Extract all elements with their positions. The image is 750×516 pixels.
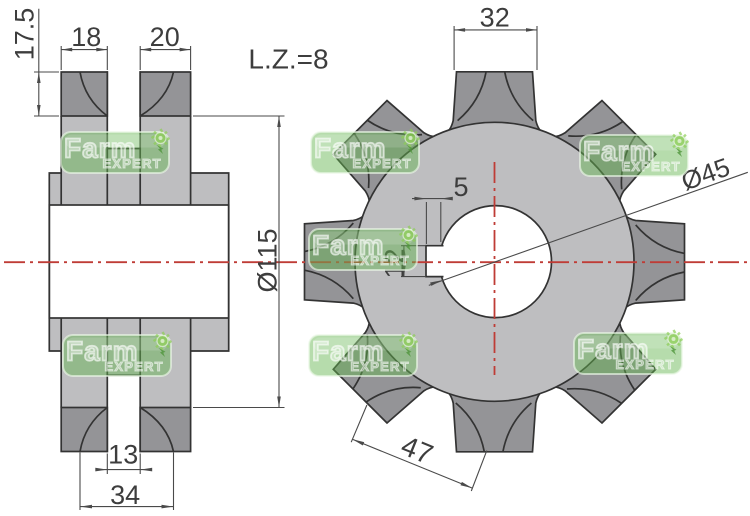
svg-text:18: 18 [71,22,101,52]
svg-text:17.5: 17.5 [10,8,40,61]
svg-text:34: 34 [110,480,140,510]
svg-text:L.Z.=8: L.Z.=8 [248,44,328,75]
svg-text:Ø115: Ø115 [253,228,283,292]
svg-text:13: 13 [108,440,138,470]
svg-text:32: 32 [480,3,510,33]
svg-text:20: 20 [150,22,180,52]
svg-text:5: 5 [453,172,468,202]
